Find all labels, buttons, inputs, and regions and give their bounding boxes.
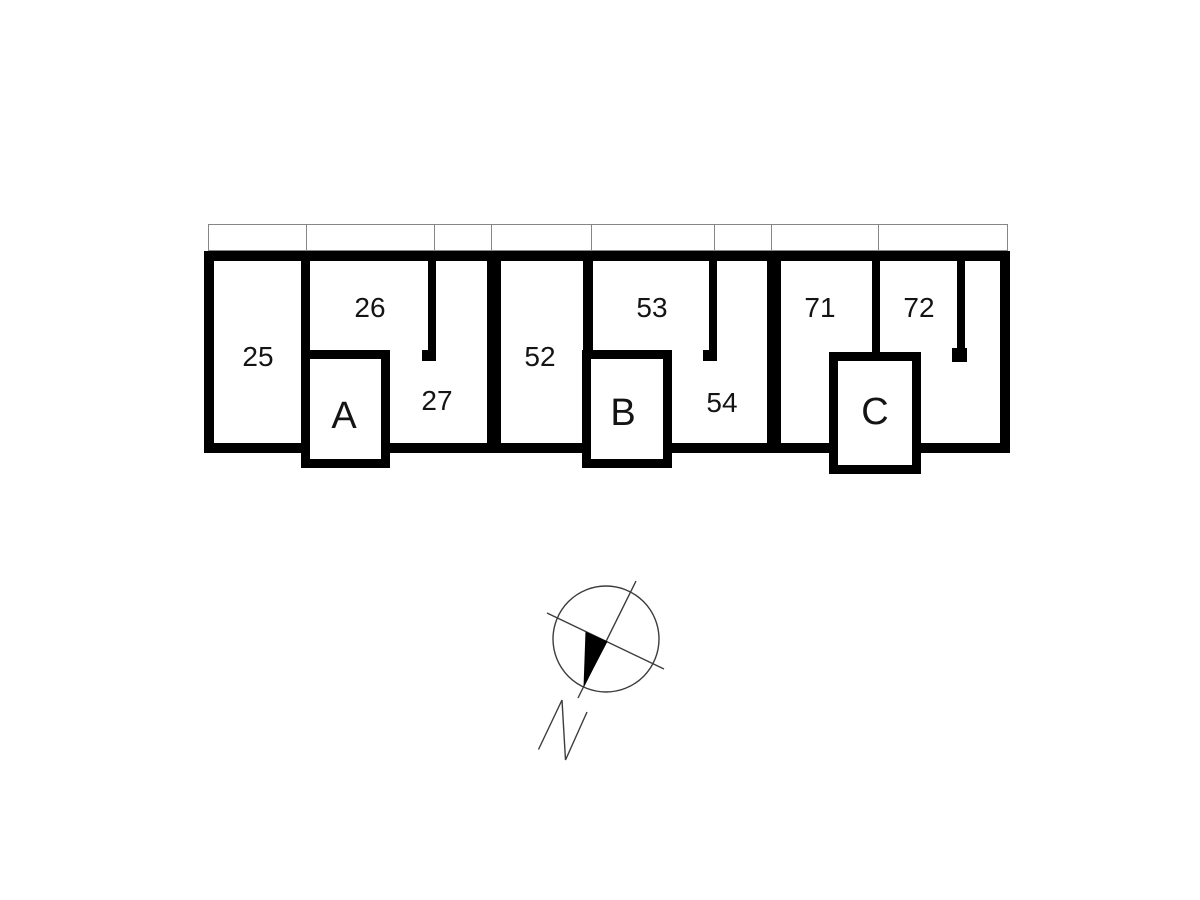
room-label-71: 71 — [804, 294, 835, 322]
wall-room26-room27 — [428, 251, 436, 354]
core-label-a: A — [331, 397, 356, 435]
floor-plan-canvas: 25 26 27 52 53 54 71 72 A B C N — [0, 0, 1200, 900]
strip-divider — [306, 225, 307, 250]
wall-room71-room72 — [872, 251, 880, 358]
door-jamb-room54 — [703, 350, 717, 361]
compass-circle — [553, 586, 659, 692]
wall-room53-room54 — [709, 251, 717, 354]
party-wall-unit1-unit2 — [487, 251, 501, 453]
party-wall-unit2-unit3 — [767, 251, 781, 453]
north-needle-icon — [584, 632, 608, 688]
strip-divider — [434, 225, 435, 250]
strip-divider — [771, 225, 772, 250]
room-label-52: 52 — [524, 343, 555, 371]
room-label-27: 27 — [421, 387, 452, 415]
outer-wall-top — [204, 251, 1010, 261]
strip-divider — [491, 225, 492, 250]
core-label-c: C — [861, 393, 888, 431]
room-label-25: 25 — [242, 343, 273, 371]
strip-divider — [714, 225, 715, 250]
room-label-72: 72 — [903, 294, 934, 322]
room-label-54: 54 — [706, 389, 737, 417]
north-arrow: N — [520, 570, 690, 780]
outer-wall-left — [204, 251, 214, 453]
balcony-strip — [208, 224, 1008, 251]
north-label-glyph — [539, 700, 588, 760]
strip-divider — [878, 225, 879, 250]
outer-wall-right — [1000, 251, 1010, 453]
door-jamb-room27 — [422, 350, 436, 361]
core-label-b: B — [610, 394, 635, 432]
room-label-26: 26 — [354, 294, 385, 322]
wall-room72-stub — [957, 251, 965, 349]
strip-divider — [591, 225, 592, 250]
door-jamb-room72 — [952, 348, 967, 362]
room-label-53: 53 — [636, 294, 667, 322]
